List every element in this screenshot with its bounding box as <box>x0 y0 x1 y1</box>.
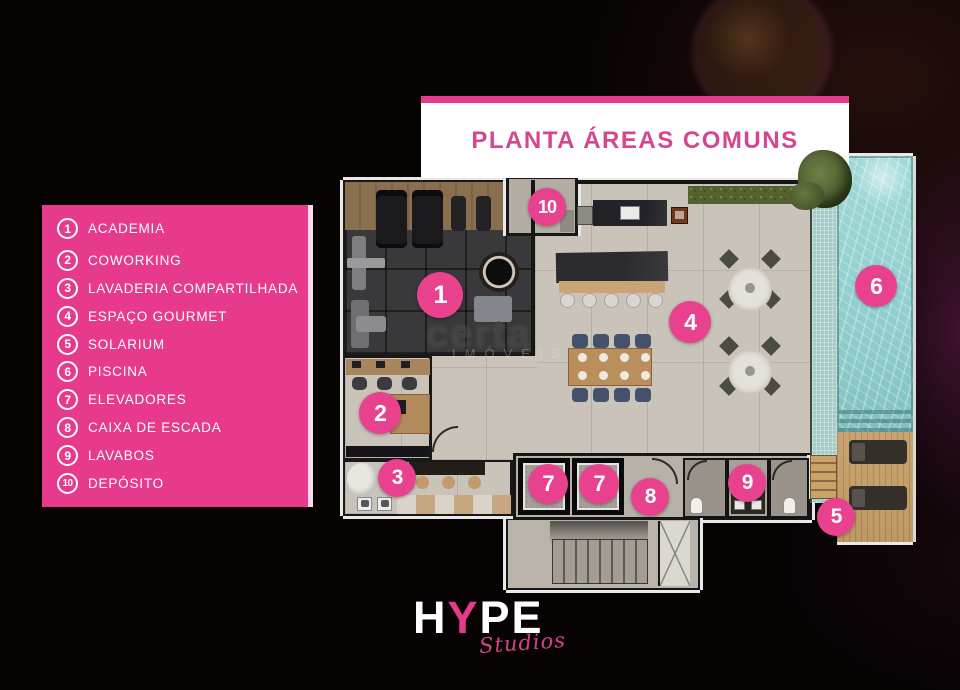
dining-chair <box>572 334 588 348</box>
desk-item <box>376 361 385 368</box>
shaft <box>658 521 690 586</box>
stool <box>416 476 429 489</box>
legend-item-label: SOLARIUM <box>88 337 165 352</box>
legend-number-badge: 3 <box>57 278 78 299</box>
plan-marker-1: 1 <box>417 272 463 318</box>
legend-item-label: CAIXA DE ESCADA <box>88 420 222 435</box>
legend-item-9: 9LAVABOS <box>57 445 300 466</box>
plate <box>641 353 650 362</box>
legend-number-badge: 1 <box>57 218 78 239</box>
gym-rug <box>479 252 519 292</box>
coworking-shelf <box>346 446 429 457</box>
plan-marker-6: 6 <box>855 265 897 307</box>
washing-machine <box>377 497 392 511</box>
top-wall <box>576 180 816 184</box>
logo-script: Studios <box>478 628 566 658</box>
plan-marker-2: 2 <box>359 392 401 434</box>
plate <box>641 371 650 380</box>
cabinet-row <box>397 495 511 514</box>
dining-chair <box>593 388 609 402</box>
treadmill <box>412 190 443 248</box>
kitchen-sink <box>620 206 640 220</box>
dining-chair <box>635 388 651 402</box>
bar-stool <box>626 293 641 308</box>
desk-item <box>401 361 410 368</box>
plan-marker-8: 8 <box>631 478 669 516</box>
toilet <box>783 497 796 514</box>
dining-chair <box>614 388 630 402</box>
kitchen-cabinet <box>577 206 593 225</box>
laundry-counter <box>409 462 485 475</box>
bar-stool <box>560 293 575 308</box>
legend-item-6: 6PISCINA <box>57 361 300 382</box>
plan-marker-4: 4 <box>669 301 711 343</box>
legend-number-badge: 5 <box>57 334 78 355</box>
plan-marker-9: 9 <box>728 464 766 502</box>
page-title: PLANTA ÁREAS COMUNS <box>471 127 798 155</box>
legend-item-8: 8CAIXA DE ESCADA <box>57 417 300 438</box>
round-table <box>728 350 772 394</box>
plate <box>578 353 587 362</box>
gym-mat <box>474 296 512 322</box>
stool <box>442 476 455 489</box>
legend-item-label: COWORKING <box>88 253 181 268</box>
legend-number-badge: 6 <box>57 361 78 382</box>
legend-item-3: 3LAVADERIA COMPARTILHADA <box>57 278 300 299</box>
plate <box>599 371 608 380</box>
grill <box>671 207 688 224</box>
legend-item-10: 10DEPÓSITO <box>57 473 300 494</box>
legend-item-label: ACADEMIA <box>88 221 165 236</box>
office-chair <box>377 377 392 390</box>
plate <box>620 371 629 380</box>
deck-steps <box>810 455 837 499</box>
legend-number-badge: 4 <box>57 306 78 327</box>
legend-item-1: 1ACADEMIA <box>57 218 300 239</box>
legend-number-badge: 7 <box>57 389 78 410</box>
washing-machine <box>357 497 372 511</box>
toilet <box>690 497 703 514</box>
plate <box>620 353 629 362</box>
title-card: PLANTA ÁREAS COMUNS <box>421 96 849 178</box>
bar-stool <box>604 293 619 308</box>
pool-steps <box>839 405 911 432</box>
legend-item-label: PISCINA <box>88 364 148 379</box>
island-counter <box>556 251 669 283</box>
legend-item-label: ELEVADORES <box>88 392 187 407</box>
gym-bench-seat <box>356 316 386 332</box>
legend-number-badge: 10 <box>57 473 78 494</box>
legend-number-badge: 2 <box>57 250 78 271</box>
sun-lounger <box>849 486 907 510</box>
dining-chair <box>593 334 609 348</box>
legend-number-badge: 9 <box>57 445 78 466</box>
office-chair <box>402 377 417 390</box>
plate <box>599 353 608 362</box>
plate <box>578 371 587 380</box>
bar-stool <box>582 293 597 308</box>
gym-machine-bar <box>347 258 385 268</box>
legend-item-5: 5SOLARIUM <box>57 334 300 355</box>
legend-number-badge: 8 <box>57 417 78 438</box>
plan-marker-5: 5 <box>817 498 855 536</box>
legend-item-label: DEPÓSITO <box>88 476 164 491</box>
stair-steps <box>552 539 648 584</box>
dining-chair <box>614 334 630 348</box>
plan-marker-7: 7 <box>579 464 619 504</box>
sink <box>751 500 762 510</box>
legend-item-4: 4ESPAÇO GOURMET <box>57 306 300 327</box>
island-ledge <box>559 281 665 293</box>
bar-stool <box>648 293 663 308</box>
office-chair <box>352 377 367 390</box>
dining-chair <box>572 388 588 402</box>
legend-item-label: LAVABOS <box>88 448 155 463</box>
legend-item-7: 7ELEVADORES <box>57 389 300 410</box>
shaft-x-icon <box>660 521 690 586</box>
exercise-bike <box>476 196 491 231</box>
round-table <box>728 267 772 311</box>
plan-marker-7: 7 <box>528 464 568 504</box>
exercise-bike <box>451 196 466 231</box>
sun-lounger <box>849 440 907 464</box>
legend-item-2: 2COWORKING <box>57 250 300 271</box>
desk-item <box>352 361 361 368</box>
treadmill <box>376 190 407 248</box>
legend-panel: 1ACADEMIA2COWORKING3LAVADERIA COMPARTILH… <box>42 205 313 507</box>
dining-chair <box>635 334 651 348</box>
flyer-canvas: certa IMÓVEIS 1ACADEMIA2COWORKING3LAVADE… <box>0 0 960 690</box>
stool <box>468 476 481 489</box>
lounge-chair <box>347 463 377 496</box>
plan-marker-3: 3 <box>378 459 416 497</box>
plan-marker-10: 10 <box>528 188 566 226</box>
brand-logo: HYPE Studios <box>413 595 633 665</box>
legend-item-label: LAVADERIA COMPARTILHADA <box>88 281 298 296</box>
legend-item-label: ESPAÇO GOURMET <box>88 309 227 324</box>
